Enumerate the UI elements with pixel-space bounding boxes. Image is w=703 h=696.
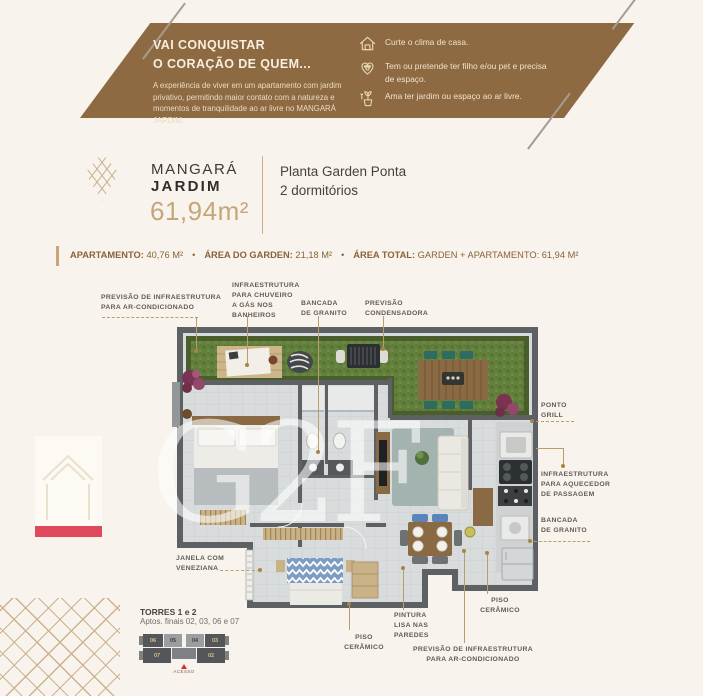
leader-dot [381, 347, 385, 351]
leader-line [487, 555, 488, 594]
leader-dot [316, 450, 320, 454]
leader-line [536, 448, 564, 449]
banner-item-garden: Ama ter jardim ou espaço ao ar livre. [358, 90, 568, 107]
leader-dot [528, 539, 532, 543]
callout-ac-infrastructure-top: PREVISÃO DE INFRAESTRUTURA PARA AR-CONDI… [101, 293, 221, 313]
leader-dot [530, 419, 534, 423]
callout-grill-point: PONTO GRILL [541, 401, 567, 421]
leader-line [247, 316, 248, 365]
brochure-page: { "colors": { "background": "#f8f3ec", "… [0, 0, 703, 696]
callout-condenser: PREVISÃO CONDENSADORA [365, 299, 428, 319]
leader-dot [485, 551, 489, 555]
leader-line [403, 570, 404, 610]
leader-line [102, 317, 198, 318]
leader-dot [347, 602, 351, 606]
leader-line [349, 606, 350, 630]
watermark-logo-block [35, 436, 102, 526]
leader-line [464, 553, 465, 643]
callout-ac-infrastructure-bottom: PREVISÃO DE INFRAESTRUTURA PARA AR-CONDI… [393, 645, 553, 665]
house-icon [358, 34, 377, 53]
leader-dot [245, 363, 249, 367]
keyplan-unit-06: 06 [143, 634, 163, 647]
leader-line [220, 570, 260, 571]
banner-item-text: Curte o clima de casa. [385, 36, 468, 49]
plan-title: Planta Garden Ponta 2 dormitórios [280, 163, 406, 201]
leader-line [534, 541, 590, 542]
plant-icon [358, 88, 377, 107]
callout-granite-counter-right: BANCADA DE GRANITO [541, 516, 587, 536]
keyplan-unit-07: 07 [143, 648, 171, 663]
keyplan-tab [225, 651, 229, 660]
watermark-house-icon [35, 436, 102, 526]
keyplan-core [172, 648, 196, 659]
callout-window-blinds: JANELA COM VENEZIANA [176, 554, 224, 574]
banner-item-climate: Curte o clima de casa. [358, 36, 568, 53]
keyplan-tab [225, 636, 229, 645]
leader-line [536, 421, 574, 422]
callout-granite-counter-top: BANCADA DE GRANITO [301, 299, 347, 319]
keyplan-diagram: 06 05 04 03 07 02 ACESSO [139, 631, 229, 677]
watermark-red-bar [35, 526, 102, 537]
keyplan-subtitle: Aptos. finais 02, 03, 06 e 07 [140, 617, 239, 626]
bullet-separator: • [341, 250, 344, 260]
keyplan-unit-03: 03 [205, 634, 225, 647]
corner-lattice-ornament [0, 598, 120, 696]
brand-name-top: MANGARÁ [151, 161, 238, 178]
picnic-deck [217, 346, 282, 378]
brand-logo-mark [84, 152, 120, 202]
leader-dot [258, 568, 262, 572]
stats-accent-bar [56, 246, 59, 266]
leader-dot [401, 566, 405, 570]
leader-line [383, 316, 384, 349]
callout-gas-shower: INFRAESTRUTURA PARA CHUVEIRO A GÁS NOS B… [232, 281, 300, 320]
leader-line [196, 318, 197, 351]
watermark-letters: G2F [150, 405, 417, 543]
stat-apartment: APARTAMENTO: 40,76 M² [70, 250, 183, 260]
callout-water-heater: INFRAESTRUTURA PARA AQUECEDOR DE PASSAGE… [541, 470, 610, 500]
keyplan-unit-02: 02 [197, 648, 225, 663]
area-stats: APARTAMENTO: 40,76 M² • ÁREA DO GARDEN: … [70, 250, 578, 260]
brand-area-value: 61,94m² [150, 196, 249, 227]
brand-name-bottom: JARDIM [151, 178, 222, 195]
banner-heading: VAI CONQUISTAR O CORAÇÃO DE QUEM... [153, 36, 311, 74]
keyplan-access-label: ACESSO [167, 669, 201, 674]
leader-dot [462, 549, 466, 553]
divider-line [262, 156, 263, 234]
beanbag-chair [287, 351, 313, 373]
banner-body-text: A experiência de viver em um apartamento… [153, 80, 343, 126]
callout-smooth-paint: PINTURA LISA NAS PAREDES [394, 611, 429, 641]
leader-line [318, 316, 319, 452]
pet-heart-icon [358, 58, 377, 77]
banner-item-text: Ama ter jardim ou espaço ao ar livre. [385, 90, 522, 103]
leader-dot [194, 349, 198, 353]
stat-garden: ÁREA DO GARDEN: 21,18 M² [204, 250, 332, 260]
keyplan-unit-04: 04 [186, 634, 204, 647]
bullet-separator: • [192, 250, 195, 260]
banner-item-pet: Tem ou pretende ter filho e/ou pet e pre… [358, 60, 558, 85]
leader-dot [561, 464, 565, 468]
keyplan-unit-05: 05 [164, 634, 182, 647]
callout-ceramic-floor-center: PISO CERÂMICO [336, 633, 392, 653]
stat-total: ÁREA TOTAL: GARDEN + APARTAMENTO: 61,94 … [353, 250, 578, 260]
banner-item-text: Tem ou pretende ter filho e/ou pet e pre… [385, 60, 558, 85]
callout-ceramic-floor-right: PISO CERÂMICO [472, 596, 528, 616]
